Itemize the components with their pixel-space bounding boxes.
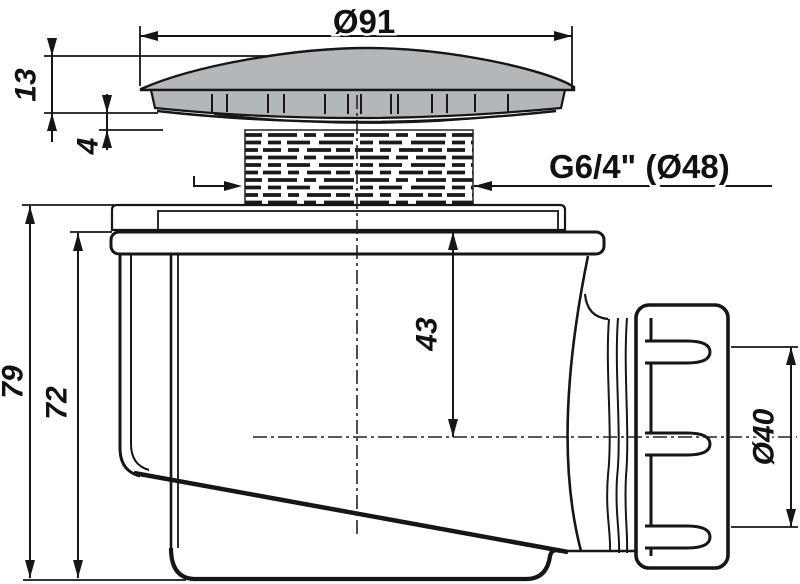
body-slanted-floor — [134, 473, 568, 552]
trap-body — [120, 254, 638, 579]
dim-label-flange-to-axis: 43 — [411, 317, 444, 352]
dimension-cap-lip: 4 — [72, 94, 164, 155]
dimension-total-height: 79 — [0, 205, 186, 580]
dim-label-thread-spec: G6/4" (Ø48) — [549, 148, 730, 185]
body-outlet-shoulder — [585, 294, 608, 319]
dim-label-cap-height: 13 — [10, 68, 43, 102]
cap-assembly — [141, 48, 574, 123]
dim-label-outlet-diameter: Ø40 — [748, 408, 781, 465]
drain-trap-drawing: Ø91 13 4 G6/4" (Ø48) 43 7 — [0, 0, 800, 584]
dimension-body-height: 72 — [41, 232, 113, 578]
body-inner-cup-bottom — [171, 548, 560, 579]
cap-dome — [141, 48, 574, 90]
flange-plate — [112, 205, 565, 230]
dim-label-total-height: 79 — [0, 365, 30, 399]
dim-label-cap-lip: 4 — [72, 137, 105, 155]
dim-label-body-height: 72 — [41, 386, 74, 420]
dim-label-top-diameter: Ø91 — [333, 3, 395, 40]
thread-section — [245, 130, 473, 208]
bellows-seal — [607, 318, 627, 553]
dimension-flange-to-axis: 43 — [411, 232, 459, 437]
drawing-canvas: Ø91 13 4 G6/4" (Ø48) 43 7 — [0, 0, 800, 584]
body-left-wall-inner — [131, 254, 149, 470]
cap-skirt — [151, 90, 565, 118]
